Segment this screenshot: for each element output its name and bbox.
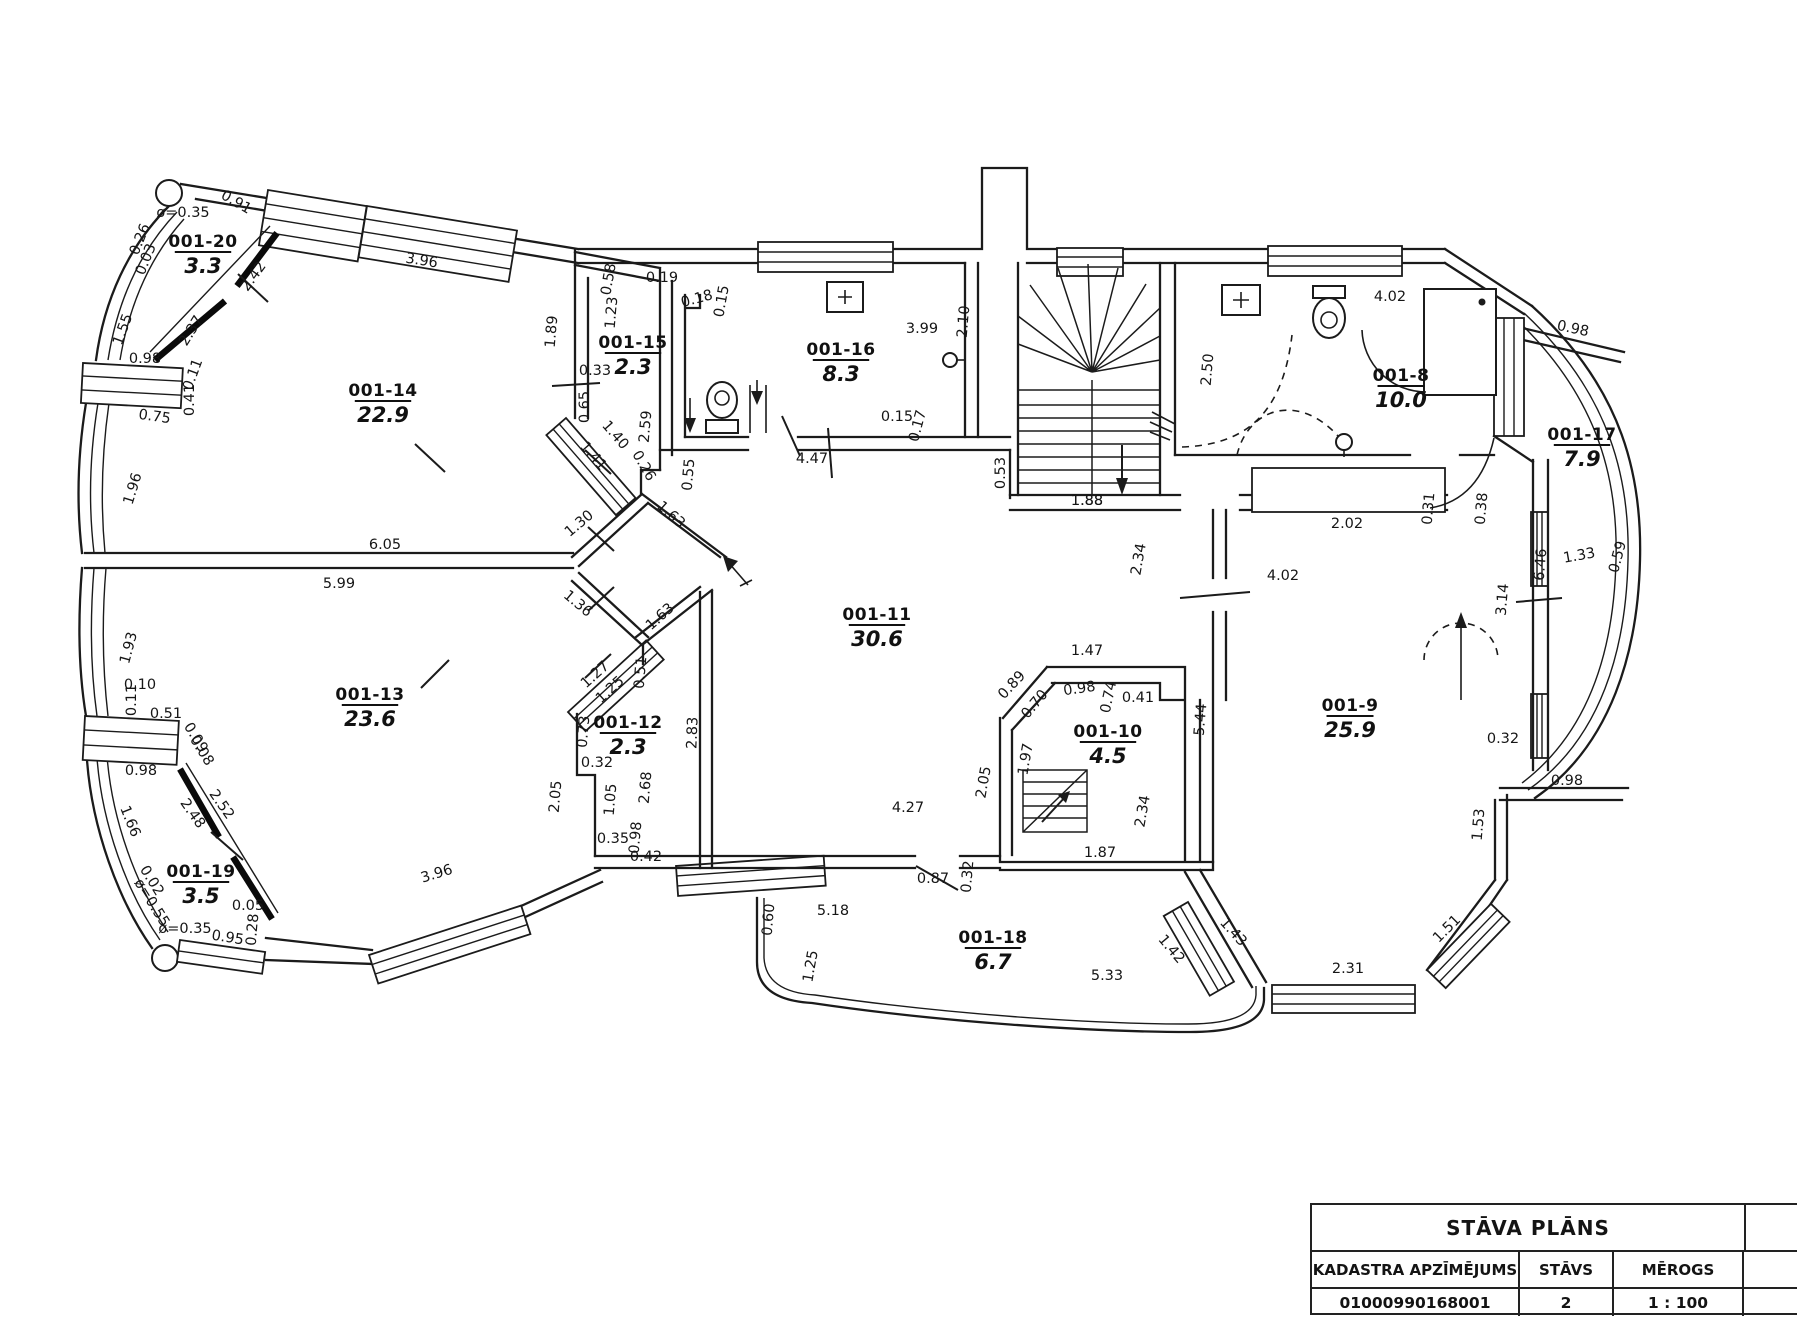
dimension-label: 1.66 [116,804,143,840]
door-arrow-icon [1455,612,1467,628]
room-label: 001-122.3 [593,713,662,759]
room-id: 001-20 [168,232,237,252]
dimension-label: 0.51 [632,656,651,690]
dimension-label: 0.51 [150,706,182,722]
sheet-title: STĀVA PLĀNS [1312,1216,1744,1240]
dimension-label: 3.14 [1494,583,1513,617]
dimension-label: 1.30 [562,507,597,540]
room-area: 7.9 [1563,447,1600,471]
room-id: 001-18 [958,928,1027,948]
dimension-label: 1.53 [1470,808,1489,842]
dimension-label: 0.75 [137,407,171,427]
room-area: 4.5 [1088,744,1126,768]
dimension-label: 2.83 [684,716,701,749]
room-id: 001-8 [1373,366,1430,386]
room-label: 001-1130.6 [842,605,911,651]
down-arrow-icon [751,391,763,405]
dimension-labels: ø=0.350.910.260.032.421.552.370.980.110.… [110,188,1630,984]
room-area: 6.7 [974,950,1012,974]
dimension-label: 0.10 [124,677,156,693]
room-id: 001-11 [842,605,911,625]
dimension-label: 0.87 [917,871,949,887]
room-id: 001-14 [348,381,417,401]
toilet-icon [1313,286,1345,338]
col-header-kadastra: KADASTRA APZĪMĒJUMS [1312,1252,1520,1287]
room-id: 001-12 [593,713,662,733]
dimension-label: 1.93 [117,630,141,665]
floorplan-sheet: ø=0.350.910.260.032.421.552.370.980.110.… [0,0,1797,1324]
dimension-label: 0.05 [232,898,264,914]
room-label: 001-104.5 [1073,722,1142,768]
dimension-label: 4.27 [892,800,924,816]
dimension-label: 0.15 [711,284,732,319]
dimension-label: 1.55 [110,312,136,348]
dimension-label: 0.98 [129,351,161,367]
room-area: 22.9 [357,403,409,427]
room-id: 001-19 [166,862,235,882]
dimension-label: 2.59 [637,410,656,444]
dimension-label: 0.31 [1420,492,1439,526]
dimension-label: 4.02 [1267,568,1299,584]
dimension-label: 0.42 [630,849,662,865]
col-header-merogs: MĒROGS [1614,1252,1744,1287]
dimension-label: 0.98 [1551,773,1583,789]
dimension-label: 1.36 [560,587,595,620]
dimension-label: 2.34 [1132,794,1153,829]
room-area: 30.6 [851,627,903,651]
dimension-label: 1.63 [653,498,688,532]
dimension-label: 0.89 [995,668,1029,703]
dimension-label: 0.55 [680,458,699,492]
room-label: 001-186.7 [958,928,1027,974]
dimension-label: 1.05 [602,783,621,817]
room-label: 001-168.3 [806,340,875,386]
shower-icon [1424,289,1496,395]
dimension-label: 0.19 [646,270,678,286]
room-id: 001-15 [598,333,667,353]
room-label: 001-925.9 [1322,696,1379,742]
dimension-label: 0.35 [597,831,629,847]
room-id: 001-17 [1547,425,1616,445]
sink-icon [1222,285,1260,315]
dimension-label: 0.33 [579,363,611,379]
room-area: 8.3 [822,362,859,386]
dimension-label: 2.50 [1199,353,1218,387]
dimension-label: 1.23 [603,296,622,330]
dimension-label: 3.99 [906,321,938,337]
dimension-label: 1.63 [643,600,678,634]
dimension-label: 0.60 [760,903,779,937]
room-labels: 001-203.3001-1422.9001-152.3001-168.3001… [166,232,1616,974]
door-swing-arrow-icon [1150,412,1175,440]
dimension-label: 1.33 [1562,545,1597,566]
room-id: 001-16 [806,340,875,360]
dimension-label: 1.89 [543,315,562,349]
dimension-label: 0.59 [1606,539,1630,574]
dimension-label: 0.98 [1062,679,1096,699]
col-header-extra [1744,1252,1797,1287]
staircase-main [1018,264,1160,495]
dimension-label: ø=0.35 [156,205,209,221]
dimension-label: 1.87 [1084,845,1116,861]
room-label: 001-193.5 [166,862,235,908]
cadastre-number: 01000990168001 [1312,1289,1520,1316]
dimension-label: 0.08 [186,733,217,769]
room-area: 23.6 [344,707,396,731]
dimension-label: 3.96 [419,862,455,887]
door-arc [1182,335,1292,447]
dimension-label: 2.10 [955,305,974,339]
fitting-icon [1336,434,1352,457]
room-area: 25.9 [1324,718,1376,742]
room-id: 001-9 [1322,696,1379,716]
dimension-label: 0.41 [1122,690,1154,706]
dimension-label: 5.18 [817,903,849,919]
dimension-label: 6.46 [1532,548,1551,582]
dimension-label: 0.74 [1098,680,1120,715]
dimension-label: 2.31 [1332,961,1364,977]
room-label: 001-810.0 [1373,366,1430,412]
dimension-label: 1.40 [598,418,631,453]
dimension-label: 2.34 [1128,542,1149,577]
dimension-label: 0.28 [244,913,263,947]
door-arc [1237,410,1338,455]
room-area: 2.3 [609,735,646,759]
divider [1744,1205,1746,1250]
room-id: 001-13 [335,685,404,705]
dimension-label: 2.05 [547,780,566,814]
floorplan-drawing: ø=0.350.910.260.032.421.552.370.980.110.… [0,0,1797,1324]
dimension-label: 5.33 [1091,968,1123,984]
room-area: 2.3 [614,355,651,379]
dimension-label: 0.32 [959,860,978,894]
dimension-label: 0.32 [1487,731,1519,747]
dimension-label: 0.65 [577,391,593,423]
dimension-label: 0.98 [125,763,157,779]
staircase-small [1023,770,1087,832]
door-arrow-icon [723,556,738,572]
room-area: 3.5 [182,884,219,908]
dimension-label: 5.99 [323,576,355,592]
dimension-label: 0.41 [182,384,198,416]
dimension-label: 0.38 [1473,492,1492,526]
chimney-flue-icon [156,180,182,206]
fitting-icon [943,353,965,367]
col-header-stavs: STĀVS [1520,1252,1614,1287]
chimney-flue-icon [152,945,178,971]
dimension-label: 0.15 [881,409,913,425]
dimension-label: 2.02 [1331,516,1363,532]
room-label: 001-1323.6 [335,685,404,731]
scale-value: 1 : 100 [1614,1289,1744,1316]
room-area: 3.3 [184,254,221,278]
dimension-ticks [211,274,1562,890]
dimension-label: 5.44 [1192,703,1211,737]
dimension-label: 2.68 [637,771,656,805]
dimension-label: 1.96 [121,471,146,507]
room-area: 10.0 [1375,388,1427,412]
sink-icon [827,282,863,312]
dimension-label: 4.02 [1374,289,1406,305]
room-id: 001-10 [1073,722,1142,742]
dimension-label: 0.32 [581,755,613,771]
dimension-label: 0.53 [993,457,1009,489]
room-label: 001-1422.9 [348,381,417,427]
dimension-label: 2.05 [973,765,994,800]
value-extra [1744,1289,1797,1316]
toilet-icon [706,382,738,433]
title-block: STĀVA PLĀNS KADASTRA APZĪMĒJUMS STĀVS MĒ… [1310,1203,1797,1315]
title-block-header: STĀVA PLĀNS [1312,1205,1797,1252]
dimension-label: 1.25 [800,949,821,984]
floor-number: 2 [1520,1289,1614,1316]
dimension-label: 0.73 [575,715,594,749]
stair-down-arrow-icon [1116,478,1128,495]
dimension-label: 4.47 [796,451,828,467]
dimension-label: 0.58 [598,262,619,297]
dimension-label: 0.26 [628,448,658,484]
dimension-label: 6.05 [369,537,401,553]
dimension-label: 1.47 [1071,643,1103,659]
dimension-label: 1.88 [1071,493,1103,509]
